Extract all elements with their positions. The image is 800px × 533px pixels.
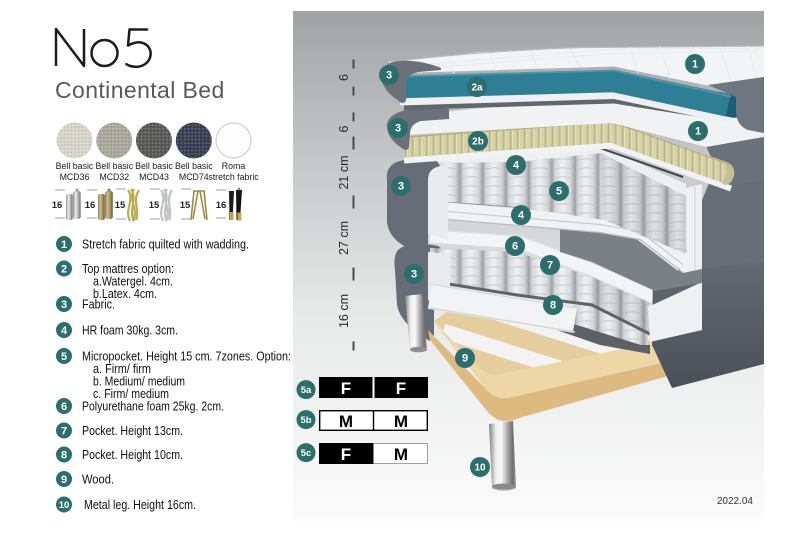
svg-text:8: 8 bbox=[61, 450, 67, 462]
svg-text:9: 9 bbox=[61, 474, 67, 486]
svg-text:M: M bbox=[394, 412, 408, 431]
svg-text:stretch fabric: stretch fabric bbox=[208, 172, 259, 182]
svg-text:4: 4 bbox=[518, 210, 525, 222]
svg-text:21 cm: 21 cm bbox=[337, 155, 351, 189]
svg-text:3: 3 bbox=[61, 299, 67, 311]
svg-text:Pocket. Height 10cm.: Pocket. Height 10cm. bbox=[82, 447, 183, 462]
svg-text:15: 15 bbox=[115, 200, 126, 211]
svg-text:Bell basic: Bell basic bbox=[56, 161, 94, 171]
svg-text:M: M bbox=[394, 445, 408, 464]
svg-text:Bell basic: Bell basic bbox=[95, 161, 133, 171]
svg-text:7: 7 bbox=[547, 260, 553, 272]
svg-text:F: F bbox=[341, 445, 351, 464]
svg-text:2a: 2a bbox=[471, 83, 483, 94]
svg-text:MCD43: MCD43 bbox=[139, 172, 169, 182]
svg-text:Wood.: Wood. bbox=[82, 472, 114, 487]
svg-text:MCD32: MCD32 bbox=[99, 172, 129, 182]
svg-text:3: 3 bbox=[411, 269, 417, 281]
svg-text:1: 1 bbox=[61, 239, 67, 251]
svg-text:5a: 5a bbox=[301, 385, 312, 396]
svg-text:F: F bbox=[341, 379, 351, 398]
svg-text:3: 3 bbox=[398, 181, 404, 193]
svg-text:7: 7 bbox=[61, 426, 67, 438]
svg-text:9: 9 bbox=[462, 353, 468, 365]
svg-text:Roma: Roma bbox=[222, 161, 246, 171]
svg-text:Bell basic: Bell basic bbox=[135, 161, 173, 171]
svg-text:MCD36: MCD36 bbox=[60, 172, 90, 182]
svg-text:5: 5 bbox=[61, 351, 67, 363]
svg-text:6: 6 bbox=[337, 74, 351, 81]
svg-text:4: 4 bbox=[61, 325, 68, 337]
svg-text:Stretch fabric quilted with wa: Stretch fabric quilted with wadding. bbox=[82, 237, 249, 252]
svg-text:Pocket. Height 13cm.: Pocket. Height 13cm. bbox=[82, 423, 183, 438]
svg-text:5c: 5c bbox=[301, 448, 312, 459]
svg-text:F: F bbox=[396, 379, 406, 398]
svg-text:MCD74: MCD74 bbox=[179, 172, 209, 182]
svg-text:M: M bbox=[339, 412, 353, 431]
svg-text:5b: 5b bbox=[300, 415, 311, 426]
svg-text:5: 5 bbox=[556, 186, 562, 198]
svg-text:16: 16 bbox=[85, 200, 96, 211]
svg-text:6: 6 bbox=[512, 241, 518, 253]
svg-text:10: 10 bbox=[474, 463, 486, 474]
svg-text:16: 16 bbox=[52, 200, 63, 211]
svg-text:15: 15 bbox=[149, 200, 160, 211]
svg-text:Fabric.: Fabric. bbox=[82, 297, 115, 312]
svg-text:2: 2 bbox=[61, 264, 67, 276]
svg-text:HR foam 30kg. 3cm.: HR foam 30kg. 3cm. bbox=[82, 323, 178, 338]
svg-text:3: 3 bbox=[386, 70, 392, 82]
svg-text:Polyurethane foam 25kg. 2cm.: Polyurethane foam 25kg. 2cm. bbox=[82, 399, 224, 414]
svg-text:27 cm: 27 cm bbox=[337, 221, 351, 255]
svg-text:10: 10 bbox=[59, 500, 70, 511]
svg-text:16: 16 bbox=[216, 200, 227, 211]
svg-text:2b: 2b bbox=[472, 137, 484, 148]
svg-text:8: 8 bbox=[550, 300, 556, 312]
svg-text:Metal leg. Height 16cm.: Metal leg. Height 16cm. bbox=[84, 497, 196, 512]
svg-text:3: 3 bbox=[395, 123, 401, 135]
svg-text:Bell basic: Bell basic bbox=[175, 161, 213, 171]
svg-text:1: 1 bbox=[695, 126, 701, 138]
svg-text:15: 15 bbox=[180, 200, 191, 211]
svg-text:16 cm: 16 cm bbox=[337, 294, 351, 328]
svg-text:1: 1 bbox=[692, 59, 698, 71]
svg-text:6: 6 bbox=[337, 125, 351, 132]
svg-text:4: 4 bbox=[513, 160, 520, 172]
svg-text:6: 6 bbox=[61, 401, 67, 413]
